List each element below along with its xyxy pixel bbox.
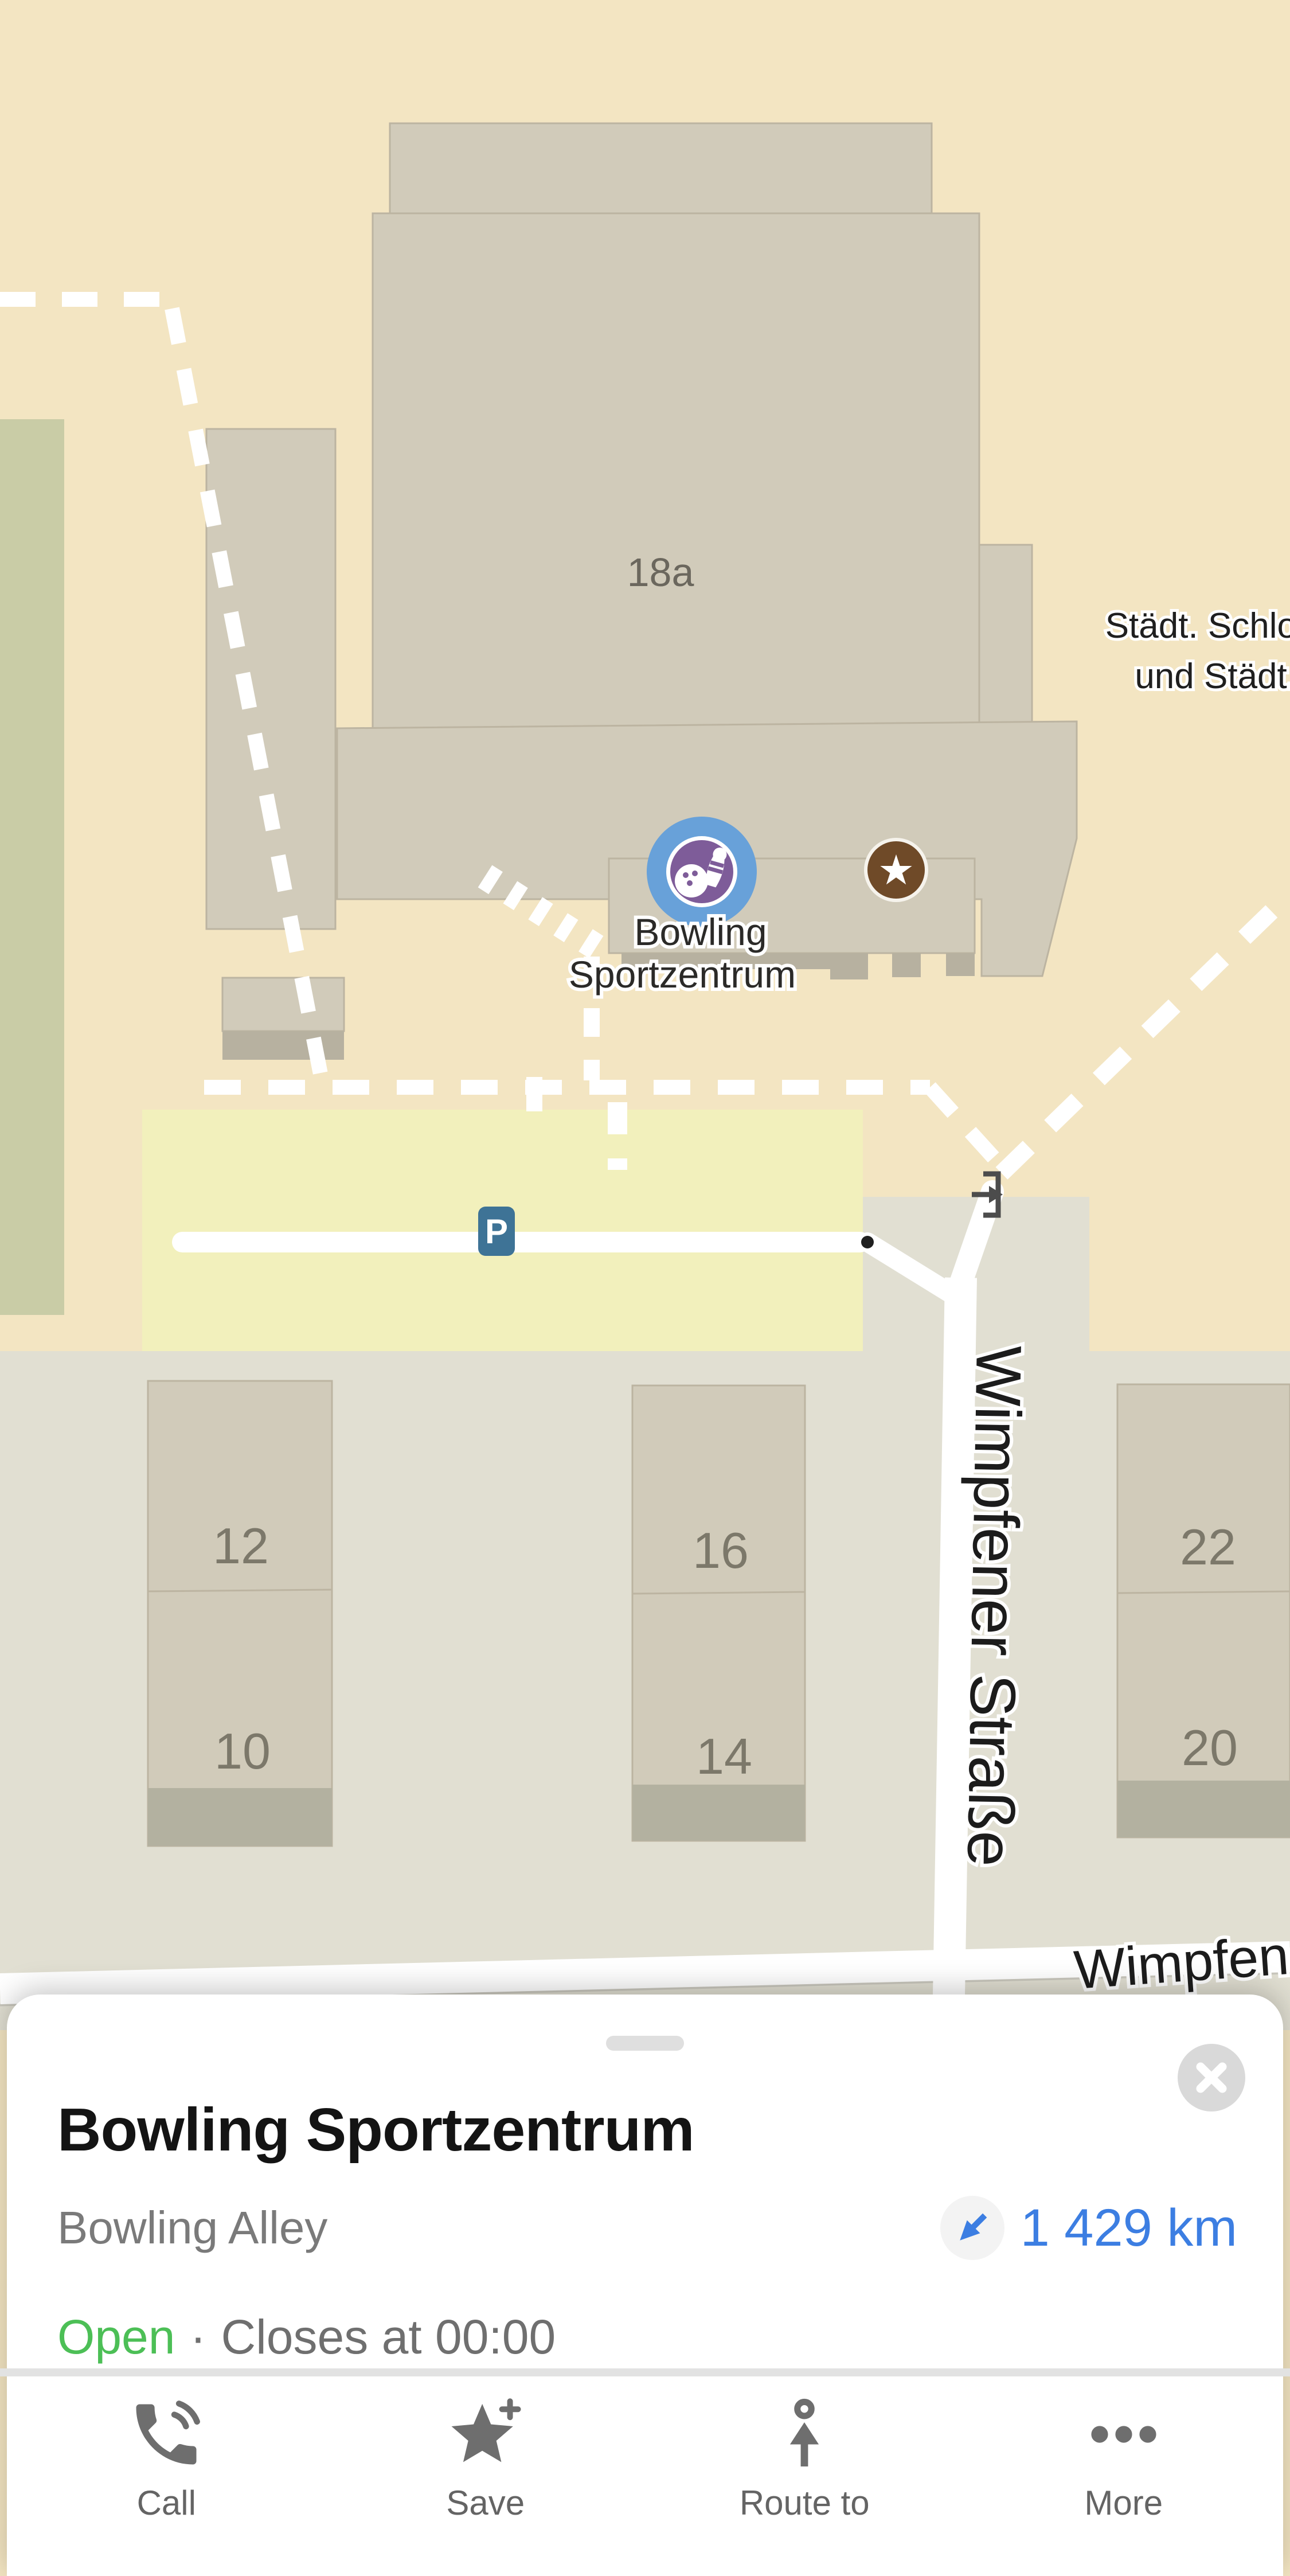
poi-label-line2: Sportzentrum <box>569 953 796 996</box>
status-separator: · <box>190 2309 206 2365</box>
place-card: Bowling Sportzentrum Bowling Alley 1 429… <box>7 1995 1283 2576</box>
building-18a-right-annex <box>979 545 1032 725</box>
parking-marker[interactable]: P <box>478 1207 515 1256</box>
close-icon <box>1194 2060 1229 2095</box>
area-label-line1: Städt. Schlo <box>1105 606 1290 646</box>
house-number: 16 <box>693 1522 749 1579</box>
direction-arrow-icon <box>951 2206 994 2250</box>
close-button[interactable] <box>1178 2044 1245 2111</box>
route-arrow-icon <box>764 2392 845 2476</box>
house-number: 14 <box>696 1728 752 1785</box>
phone-icon <box>126 2392 206 2476</box>
building-bowling-tooth <box>892 953 921 977</box>
action-bar: Call Save Route to <box>7 2376 1283 2576</box>
house-number: 10 <box>214 1723 271 1779</box>
building-22-20-shadow <box>1117 1781 1290 1837</box>
building-small <box>222 978 344 1031</box>
area-label-line2: und Städt. <box>1135 657 1290 696</box>
call-button[interactable]: Call <box>7 2376 326 2576</box>
house-number: 20 <box>1182 1719 1238 1776</box>
compass-circle <box>940 2196 1004 2260</box>
map-view[interactable]: 18a Städt. Schlo und Städt. 12 10 16 14 … <box>0 0 1290 2030</box>
building-12-10-shadow <box>148 1788 332 1846</box>
more-label: More <box>1084 2483 1163 2523</box>
place-title: Bowling Sportzentrum <box>57 2095 694 2165</box>
favorite-star-marker[interactable]: ★ <box>866 840 927 900</box>
call-label: Call <box>137 2483 196 2523</box>
star-plus-icon <box>445 2392 526 2476</box>
street-label-wimpfener-strasse: Wimpfener Straße <box>954 1345 1035 1867</box>
status-open: Open <box>57 2309 175 2365</box>
star-icon: ★ <box>878 848 915 893</box>
divider <box>0 2368 1290 2376</box>
save-button[interactable]: Save <box>326 2376 646 2576</box>
category-distance-row: Bowling Alley 1 429 km <box>57 2193 1237 2262</box>
ellipsis-icon <box>1084 2392 1164 2476</box>
distance-value: 1 429 km <box>1021 2198 1237 2258</box>
parking-icon: P <box>485 1212 508 1251</box>
status-closes: Closes at 00:00 <box>221 2309 556 2365</box>
maps-app-screen: 18a Städt. Schlo und Städt. 12 10 16 14 … <box>0 0 1290 2576</box>
house-number: 22 <box>1180 1519 1236 1575</box>
distance-info: 1 429 km <box>940 2196 1237 2260</box>
building-bowling-tooth <box>946 953 975 976</box>
building-16-14-shadow <box>632 1785 805 1841</box>
opening-hours-row: Open · Closes at 00:00 <box>57 2307 556 2367</box>
building-number-label: 18a <box>627 550 694 595</box>
drag-handle[interactable] <box>606 2036 684 2051</box>
map-green-area <box>0 419 64 1315</box>
building-18a-top <box>390 123 932 213</box>
more-button[interactable]: More <box>964 2376 1284 2576</box>
save-label: Save <box>446 2483 525 2523</box>
route-to-label: Route to <box>740 2483 870 2523</box>
house-number: 12 <box>213 1517 269 1574</box>
building-18a-main <box>373 213 979 728</box>
road-end-dot <box>861 1236 874 1248</box>
poi-label-line1: Bowling <box>634 911 767 953</box>
building-bowling-tooth <box>830 953 868 979</box>
place-category: Bowling Alley <box>57 2202 327 2254</box>
building-small-shadow <box>222 1031 344 1060</box>
building-left-annex <box>206 429 335 929</box>
route-to-button[interactable]: Route to <box>645 2376 964 2576</box>
map-canvas[interactable]: 18a Städt. Schlo und Städt. 12 10 16 14 … <box>0 0 1290 2030</box>
